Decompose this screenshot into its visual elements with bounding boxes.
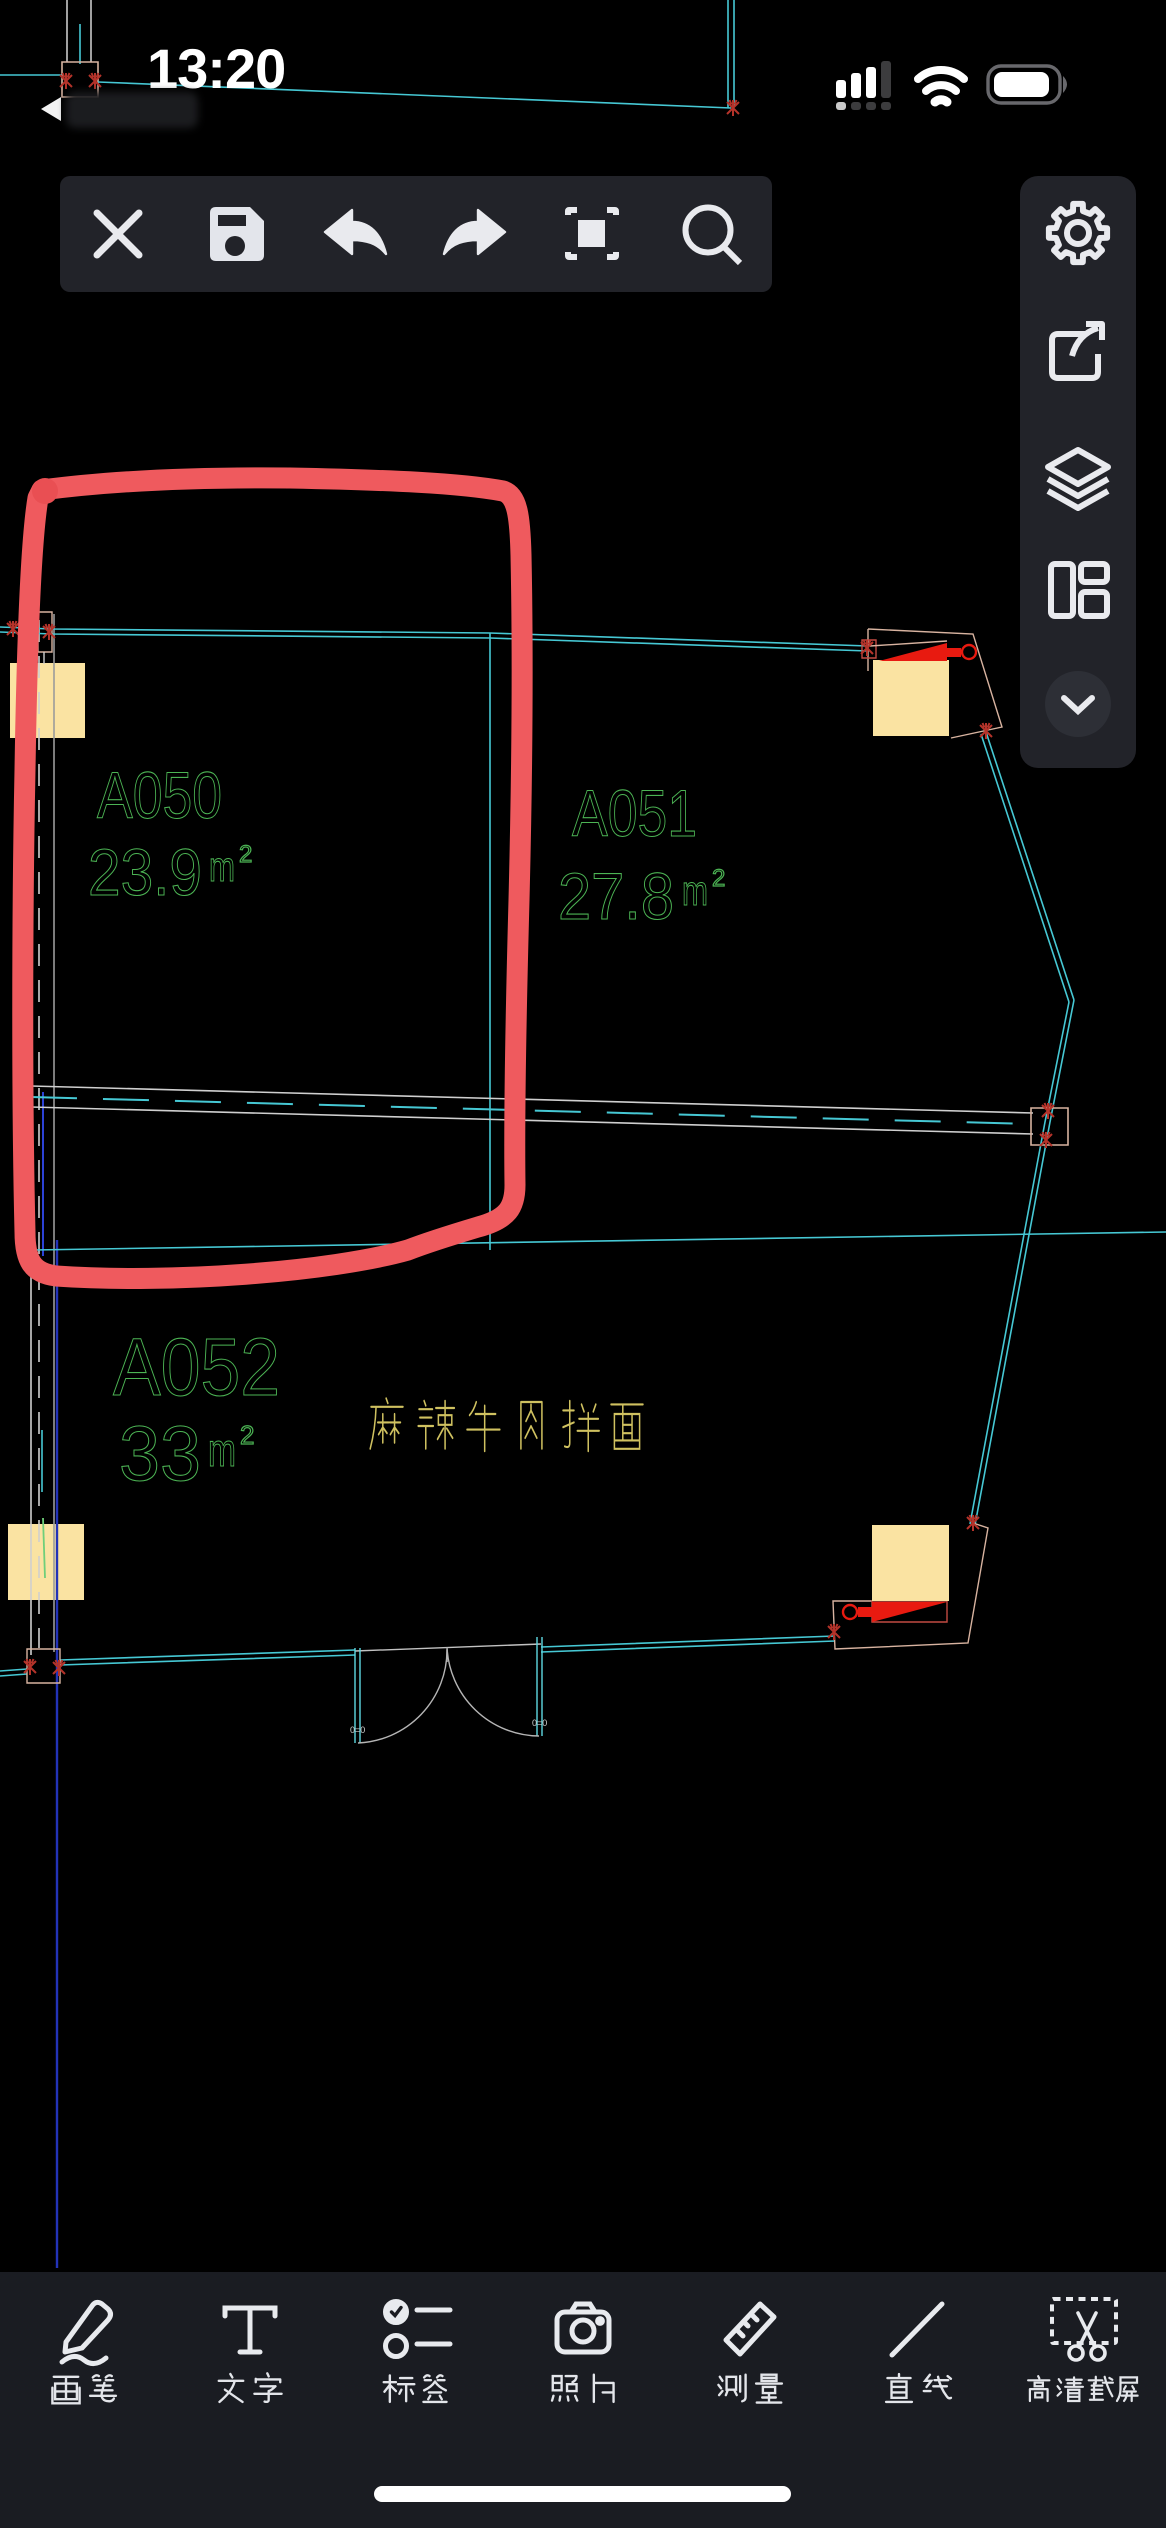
svg-text:A051: A051 <box>572 776 697 850</box>
svg-text:2: 2 <box>239 841 252 868</box>
svg-text:A052: A052 <box>113 1322 280 1413</box>
svg-text:m: m <box>209 843 235 890</box>
svg-text:23.9: 23.9 <box>88 835 202 909</box>
svg-text:33: 33 <box>119 1409 201 1497</box>
svg-text:0=0: 0=0 <box>350 1725 365 1735</box>
svg-text:0=0: 0=0 <box>532 1718 547 1728</box>
svg-text:2: 2 <box>712 865 725 892</box>
svg-text:m: m <box>682 867 708 914</box>
svg-text:27.8: 27.8 <box>558 859 674 933</box>
svg-text:2: 2 <box>240 1420 254 1450</box>
svg-text:m: m <box>208 1424 236 1476</box>
svg-text:A050: A050 <box>97 758 222 832</box>
